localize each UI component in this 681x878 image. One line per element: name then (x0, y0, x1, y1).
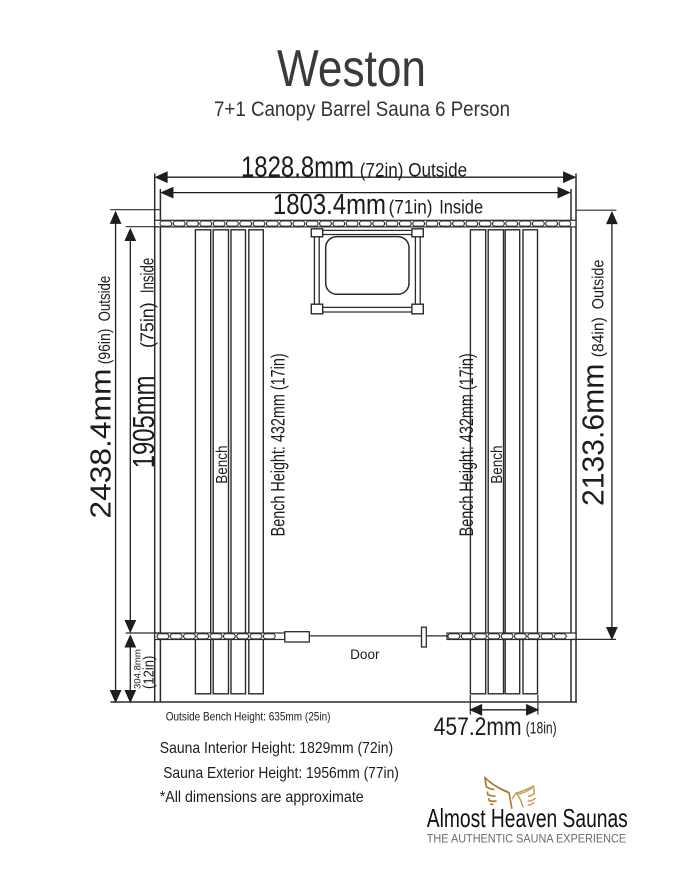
svg-text:(84in): (84in) (589, 317, 608, 357)
svg-text:(72in) Outside: (72in) Outside (360, 161, 467, 182)
svg-text:2133.6mm: 2133.6mm (576, 364, 611, 506)
svg-text:Outside: Outside (95, 276, 114, 322)
svg-text:457.2mm: 457.2mm (434, 713, 522, 741)
svg-text:Bench: Bench (489, 446, 506, 484)
svg-text:Weston: Weston (277, 39, 426, 97)
svg-text:1828.8mm: 1828.8mm (241, 152, 354, 184)
svg-text:Inside: Inside (138, 258, 158, 293)
svg-text:1803.4mm: 1803.4mm (273, 189, 386, 221)
svg-text:*All dimensions are approximat: *All dimensions are approximate (160, 789, 364, 806)
svg-text:7+1 Canopy Barrel Sauna 6 Pers: 7+1 Canopy Barrel Sauna 6 Person (214, 97, 510, 121)
svg-text:Almost Heaven Saunas: Almost Heaven Saunas (427, 803, 628, 833)
svg-text:2438.4mm: 2438.4mm (86, 369, 118, 519)
svg-text:(96in): (96in) (95, 329, 114, 365)
svg-text:Bench Height: 432mm (17in): Bench Height: 432mm (17in) (457, 353, 478, 536)
svg-text:1905mm: 1905mm (126, 376, 161, 469)
svg-text:(71in): (71in) (389, 198, 433, 219)
svg-text:THE AUTHENTIC SAUNA EXPERIENCE: THE AUTHENTIC SAUNA EXPERIENCE (427, 834, 627, 846)
svg-text:Door: Door (350, 647, 380, 662)
svg-text:(75in): (75in) (138, 302, 158, 348)
svg-text:Sauna Interior Height: 1829mm: Sauna Interior Height: 1829mm (72in) (160, 740, 393, 757)
svg-text:Outside: Outside (589, 260, 608, 310)
svg-text:Bench: Bench (214, 446, 231, 484)
svg-text:Inside: Inside (439, 198, 483, 219)
svg-text:Sauna Exterior Height: 1956mm: Sauna Exterior Height: 1956mm (77in) (163, 765, 399, 782)
svg-text:(18in): (18in) (526, 719, 557, 738)
svg-text:(12in): (12in) (140, 656, 157, 689)
svg-text:Bench Height: 432mm (17in): Bench Height: 432mm (17in) (269, 353, 290, 536)
svg-text:Outside Bench Height: 635mm (2: Outside Bench Height: 635mm (25in) (166, 710, 331, 724)
